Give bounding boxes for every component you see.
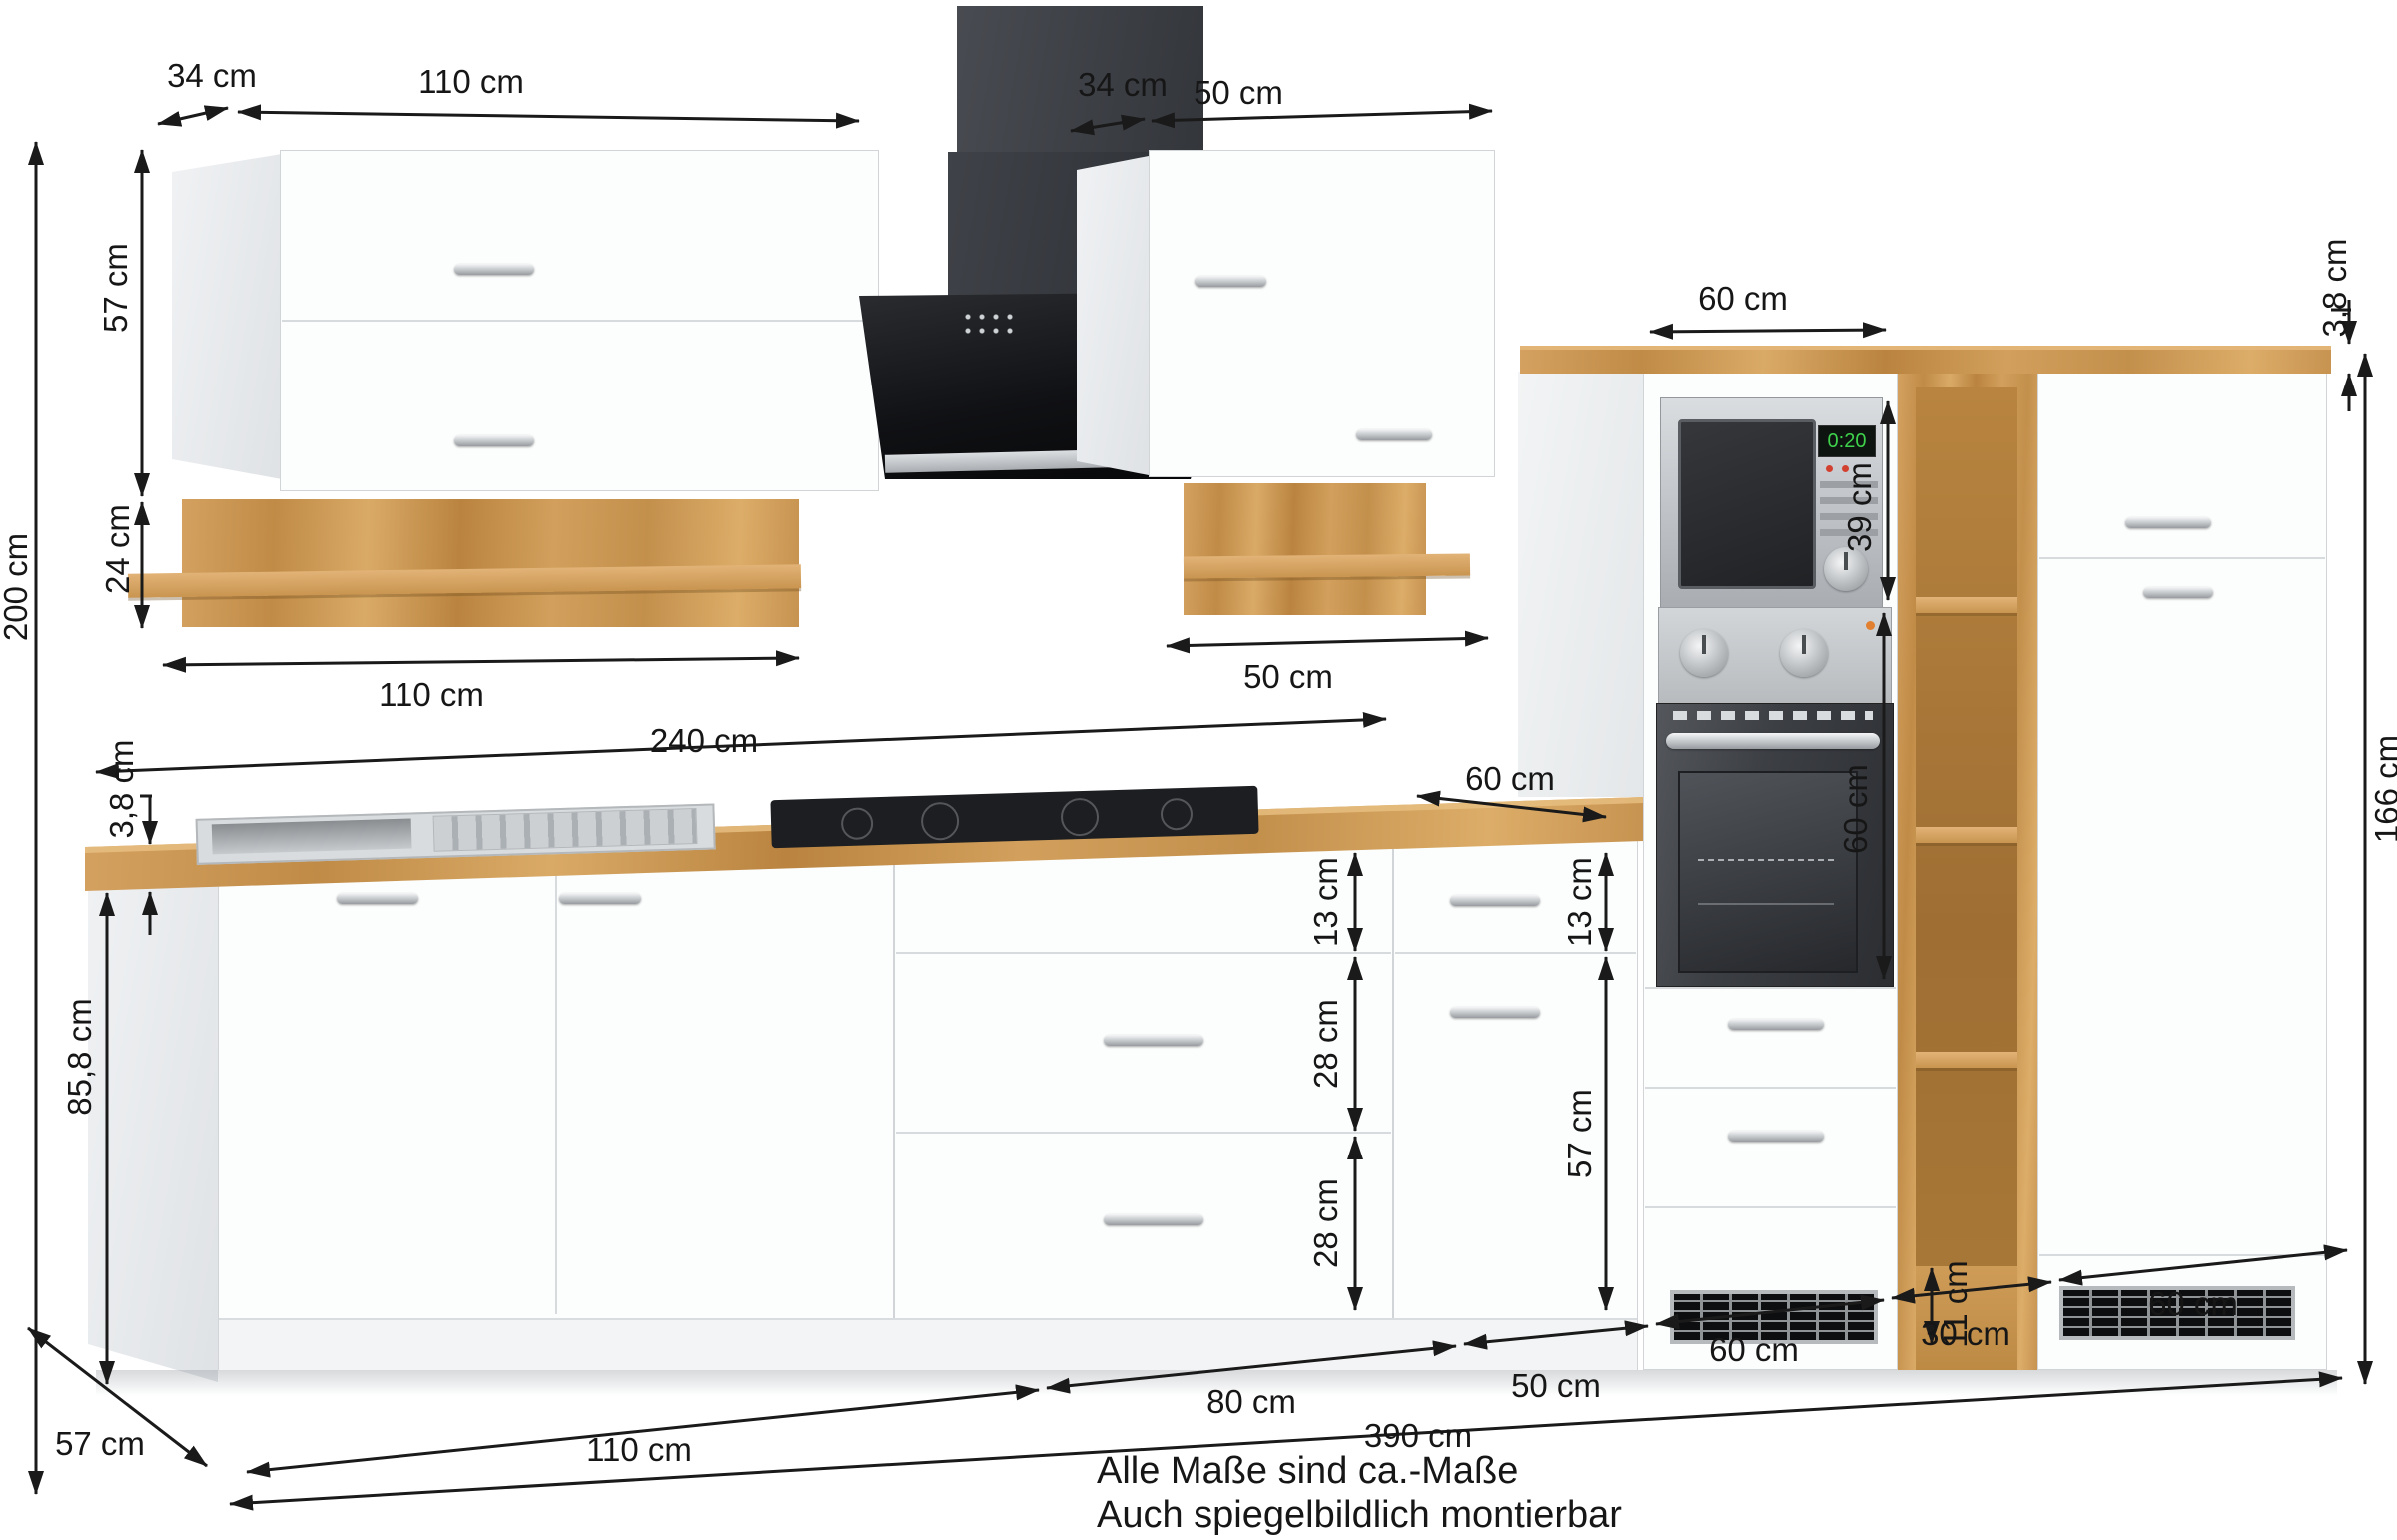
dim-label-drawer28-lower: 28 cm	[1307, 1178, 1345, 1268]
microwave-indicator	[1826, 465, 1833, 472]
tower-drawer-split	[1645, 1087, 1896, 1089]
dim-label-width-110: 110 cm	[586, 1431, 692, 1469]
tall-cabinet-door-split	[2039, 557, 2325, 559]
tall-units-wood-top	[1520, 346, 2331, 374]
oven-knob	[1780, 629, 1828, 677]
shelf-board	[1916, 1052, 2017, 1068]
door-handle	[454, 264, 534, 275]
wall-cabinet-left-side-panel	[170, 152, 282, 481]
dim-label-tall-height: 166 cm	[2368, 735, 2397, 843]
tower-drawer-split	[1645, 1206, 1896, 1208]
oven-window	[1678, 771, 1858, 973]
door-handle	[559, 893, 641, 904]
shelf-board	[1916, 827, 2017, 843]
dim-label-shelf-left-width: 110 cm	[379, 676, 484, 714]
dim-label-width-50: 50 cm	[1511, 1367, 1601, 1405]
drawer-handle	[1450, 895, 1540, 906]
drawer-handle	[1728, 1019, 1824, 1030]
dim-label-width-60-tall: 60 cm	[2148, 1285, 2238, 1323]
tall-unit-side-panel	[1518, 372, 1643, 797]
dim-label-upper-left-width: 110 cm	[418, 63, 524, 101]
dim-label-base-height: 85,8 cm	[61, 998, 99, 1115]
dim-label-tall-top-width: 60 cm	[1698, 280, 1788, 318]
door-handle	[1356, 429, 1432, 440]
drawer-handle	[1104, 1214, 1203, 1225]
door-handle	[2143, 587, 2213, 598]
dim-label-upper-right-width: 50 cm	[1194, 74, 1283, 112]
drawer-handle	[1104, 1035, 1203, 1046]
dim-label-tall-top-thickness: 3,8 cm	[2316, 238, 2354, 337]
dim-label-shelf-right-width: 50 cm	[1243, 658, 1333, 696]
dim-label-worktop-length: 240 cm	[650, 722, 758, 760]
dim-label-oven-height: 60 cm	[1837, 764, 1875, 854]
wall-shelf-right-board	[1184, 553, 1470, 578]
dim-label-worktop-thickness: 3,8 cm	[103, 739, 141, 838]
kitchen-dimension-diagram: 0:20	[0, 0, 2397, 1540]
dim-label-depth: 57 cm	[55, 1425, 145, 1463]
wall-cabinet-right-side-panel	[1075, 152, 1149, 479]
base-cabinet-side-panel	[86, 839, 218, 1390]
dim-label-total-height: 200 cm	[0, 533, 35, 641]
dim-label-width-60-oven: 60 cm	[1709, 1331, 1799, 1369]
door-handle	[454, 435, 534, 446]
dim-label-door57-right: 57 cm	[1561, 1089, 1599, 1178]
wall-cabinet-left-door-split	[282, 320, 877, 322]
dim-label-upper-left-height: 57 cm	[97, 243, 135, 333]
dim-label-microwave-height: 39 cm	[1841, 462, 1879, 552]
microwave-door	[1678, 419, 1816, 589]
drawer-split	[1395, 952, 1636, 954]
oven-rack-line	[1698, 903, 1834, 905]
door-handle	[2125, 517, 2211, 528]
dim-label-worktop-depth: 60 cm	[1465, 760, 1555, 798]
dim-label-drawer13-right: 13 cm	[1561, 857, 1599, 947]
base-cabinet-50	[1393, 839, 1638, 1370]
oven-knob	[1680, 629, 1728, 677]
sink-bowl	[212, 818, 412, 854]
door-handle	[337, 893, 418, 904]
dim-label-shelf-left-height: 24 cm	[99, 504, 137, 594]
oven-indicator	[1866, 621, 1875, 630]
drawer-handle	[1728, 1131, 1824, 1142]
door-handle	[1195, 276, 1266, 287]
oven-handle	[1666, 733, 1880, 749]
note-line-2: Auch spiegelbildlich montierbar	[1097, 1494, 1622, 1537]
dim-label-width-30: 30 cm	[1921, 1315, 2010, 1353]
tall-cabinet-door-bottom	[2039, 1254, 2325, 1256]
dim-label-upper-left-depth: 34 cm	[167, 57, 257, 95]
oven-rack-line	[1698, 859, 1834, 861]
tower-drawer-split	[1645, 987, 1896, 989]
shelf-board	[1916, 597, 2017, 613]
door-handle	[1450, 1007, 1540, 1018]
dim-label-upper-right-depth: 34 cm	[1078, 66, 1168, 104]
dim-label-drawer13-left: 13 cm	[1307, 857, 1345, 947]
microwave-knob	[1824, 547, 1868, 591]
note-line-1: Alle Maße sind ca.-Maße	[1097, 1450, 1518, 1493]
sink-cabinet-door-split	[555, 841, 557, 1314]
dim-label-drawer28-upper: 28 cm	[1307, 999, 1345, 1089]
oven-vent-slots	[1673, 711, 1873, 720]
drawer-split	[896, 1132, 1391, 1134]
extractor-hood-controls	[961, 310, 1019, 338]
wall-cabinet-right	[1149, 150, 1495, 477]
microwave-display: 0:20	[1818, 425, 1876, 457]
wall-shelf-left-back	[182, 499, 799, 627]
wall-shelf-right-back	[1184, 483, 1426, 615]
plinth	[219, 1318, 1637, 1370]
dim-label-width-80: 80 cm	[1206, 1383, 1296, 1421]
drawer-split	[896, 952, 1391, 954]
